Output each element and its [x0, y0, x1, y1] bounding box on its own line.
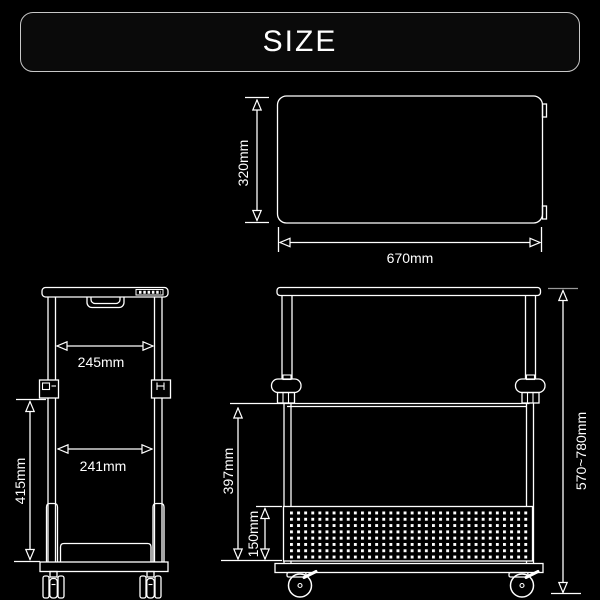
caster-hub	[520, 584, 524, 588]
front-tabletop	[277, 288, 541, 296]
caster-side-left	[287, 572, 316, 598]
hook-tray-inner	[91, 297, 120, 304]
tabletop-outline	[278, 96, 543, 223]
top-view-dimensions	[245, 98, 542, 253]
top-view-depth-label: 320mm	[235, 140, 251, 187]
front-view-total-height-label: 570~780mm	[573, 412, 589, 490]
clamp-knob	[516, 379, 546, 393]
bottom-shelf-side	[61, 544, 152, 563]
left-clamp-latch	[43, 383, 50, 390]
caster-stem	[147, 572, 154, 578]
front-view-panel-height-label: 150mm	[245, 511, 261, 558]
caster-front-right	[140, 572, 161, 599]
clamp-knob	[272, 379, 302, 393]
caster-prong	[58, 576, 64, 598]
size-diagram-page: SIZE	[0, 0, 600, 600]
perforated-panel-holes	[289, 511, 529, 559]
top-view-width-label: 670mm	[387, 250, 434, 266]
caster-prong	[140, 576, 146, 598]
hinge-tab-bottom	[543, 206, 547, 219]
technical-drawing	[0, 0, 600, 600]
front-view	[230, 288, 545, 598]
caster-prong	[155, 576, 161, 598]
caster-front-left	[43, 572, 64, 599]
front-view-shelf-height-label: 397mm	[220, 448, 236, 495]
right-height-clamp	[516, 375, 546, 403]
top-view	[278, 96, 547, 223]
caster-prong	[43, 576, 49, 598]
side-view-dimensions	[14, 346, 153, 562]
side-view-height-label: 415mm	[12, 458, 28, 505]
side-view	[40, 288, 171, 599]
right-clamp	[152, 380, 171, 398]
caster-side-right	[509, 572, 538, 598]
clamp-collar	[278, 393, 295, 404]
left-height-clamp	[272, 375, 302, 403]
caster-stem	[50, 572, 57, 578]
hinge-tab-top	[543, 104, 547, 117]
side-view-top-width-label: 245mm	[78, 354, 125, 370]
caster-wheel	[50, 579, 58, 599]
base-bar	[40, 562, 168, 572]
caster-wheel	[147, 579, 155, 599]
caster-hub	[298, 584, 302, 588]
side-view-bottom-width-label: 241mm	[80, 458, 127, 474]
clamp-collar	[522, 393, 539, 404]
